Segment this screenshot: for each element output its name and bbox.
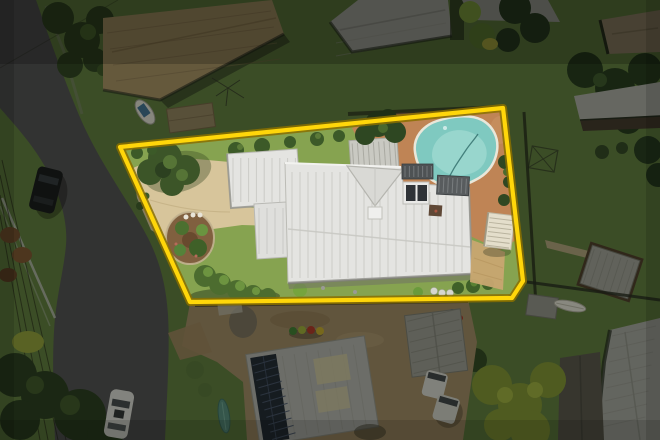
aerial-scene [0,0,660,440]
roof-louvre-2 [437,175,470,196]
pool-glint [443,126,447,130]
chimney [368,207,382,219]
aerial-photo [0,0,660,440]
roof-louvre [402,164,433,179]
skylight [403,182,429,204]
pergola [484,213,515,250]
house-mid-section [254,202,288,259]
roof-box [429,205,443,217]
